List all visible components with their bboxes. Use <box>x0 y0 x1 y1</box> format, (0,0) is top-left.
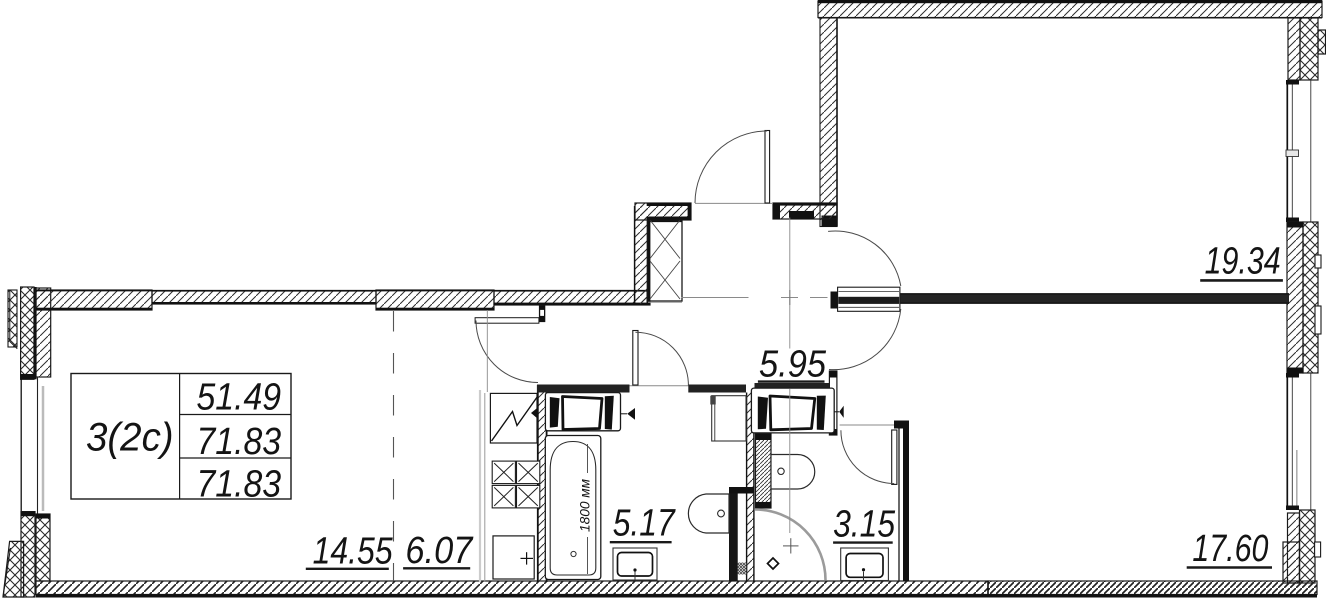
svg-text:3(2c): 3(2c) <box>86 416 174 460</box>
svg-text:19.34: 19.34 <box>1205 241 1281 283</box>
svg-text:1800 мм: 1800 мм <box>577 479 593 532</box>
svg-text:71.83: 71.83 <box>197 464 282 506</box>
svg-text:17.60: 17.60 <box>1192 528 1268 570</box>
svg-text:5.17: 5.17 <box>613 503 677 545</box>
svg-text:71.83: 71.83 <box>197 421 282 463</box>
svg-text:5.95: 5.95 <box>759 344 827 386</box>
svg-text:51.49: 51.49 <box>197 377 282 419</box>
svg-text:6.07: 6.07 <box>405 530 474 572</box>
svg-text:14.55: 14.55 <box>313 531 394 573</box>
svg-text:3.15: 3.15 <box>833 504 896 546</box>
